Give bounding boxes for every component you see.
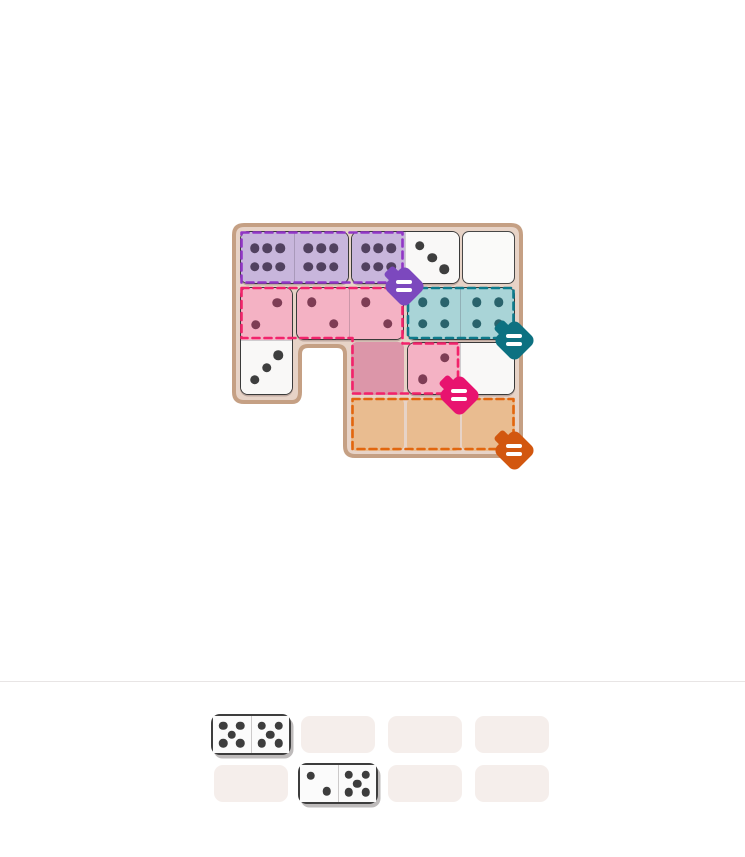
tray-slot-0-1[interactable] (301, 716, 375, 753)
tray-slot-1-2[interactable] (388, 765, 462, 802)
pip (251, 320, 261, 330)
pip (219, 739, 228, 748)
pip (275, 722, 284, 731)
pip (472, 319, 482, 329)
pip (275, 244, 285, 254)
board-domino-2-3[interactable] (240, 287, 293, 396)
tray-slot-0-3[interactable] (475, 716, 549, 753)
pip (383, 319, 393, 329)
pip (304, 262, 314, 272)
pip (329, 319, 339, 329)
pip (374, 262, 384, 272)
pip (257, 722, 266, 731)
pip (266, 730, 275, 739)
pip (374, 244, 384, 254)
pip (329, 262, 339, 272)
empty-cell-r0c4[interactable] (462, 231, 515, 284)
pip (275, 262, 285, 272)
pip (418, 319, 428, 329)
domino-half-6 (241, 232, 294, 283)
pip (219, 722, 228, 731)
pip (440, 298, 450, 308)
board-domino-2-2[interactable] (296, 287, 405, 340)
pip (418, 298, 428, 308)
pip (440, 319, 450, 329)
pip (307, 771, 316, 780)
pip (344, 771, 353, 780)
section-divider (0, 681, 745, 682)
pip (262, 363, 272, 373)
pip (263, 244, 273, 254)
pip (361, 298, 371, 308)
pip (250, 262, 260, 272)
board-domino-6-6[interactable] (240, 231, 349, 284)
domino-half-5 (213, 716, 251, 753)
pip (329, 244, 339, 254)
pip (322, 787, 331, 796)
pip (316, 262, 326, 272)
empty-cell-r3c2[interactable] (351, 398, 404, 451)
equals-symbol (444, 380, 474, 410)
pip (236, 739, 245, 748)
pip (494, 298, 504, 308)
domino-tray (205, 703, 565, 813)
equals-symbol (499, 435, 529, 465)
pip (344, 788, 353, 797)
pip (386, 244, 396, 254)
domino-half-6 (294, 232, 348, 283)
pip (361, 262, 371, 272)
pip (273, 351, 283, 361)
pip (418, 374, 428, 384)
pip (472, 298, 482, 308)
tray-domino-5-5[interactable] (211, 714, 291, 755)
pip (250, 375, 260, 385)
equals-symbol (389, 271, 419, 301)
tray-slot-1-0[interactable] (214, 765, 288, 802)
pip (427, 253, 437, 263)
pip (272, 298, 282, 308)
domino-half-5 (338, 765, 377, 802)
pip (440, 264, 450, 274)
pip (316, 244, 326, 254)
page (0, 0, 745, 857)
domino-half-2 (241, 288, 292, 341)
pip (250, 244, 260, 254)
domino-half-2 (297, 288, 350, 339)
game-board (234, 223, 524, 459)
pip (257, 739, 266, 748)
pip (228, 730, 237, 739)
pip (440, 353, 450, 363)
pip (415, 241, 425, 251)
tray-slot-1-3[interactable] (475, 765, 549, 802)
domino-half-3 (241, 340, 292, 394)
pip (263, 262, 273, 272)
pip (362, 788, 371, 797)
pip (304, 244, 314, 254)
pip (362, 771, 371, 780)
equals-symbol (499, 325, 529, 355)
domino-half-5 (251, 716, 290, 753)
empty-cell-r2c2[interactable] (351, 342, 404, 395)
pip (275, 739, 284, 748)
pip (361, 244, 371, 254)
pip (236, 722, 245, 731)
tray-slot-0-2[interactable] (388, 716, 462, 753)
tray-domino-2-5[interactable] (298, 763, 378, 804)
pip (307, 298, 317, 308)
pip (353, 779, 362, 788)
domino-half-2 (300, 765, 338, 802)
